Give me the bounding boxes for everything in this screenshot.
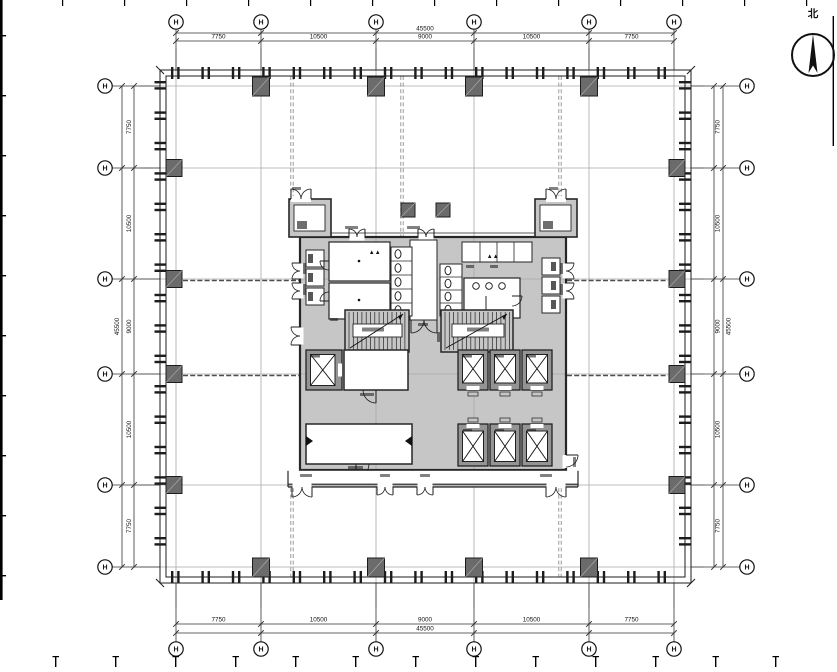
micro-label: [463, 355, 472, 358]
dimension-label: 10500: [523, 617, 541, 624]
dimension-label: 7750: [126, 120, 133, 135]
grid-bubble: H: [98, 478, 112, 492]
micro-label: [303, 284, 306, 295]
floor-plan-sheet: HHHHHH455007750105009000105007750HHHHHH4…: [0, 0, 837, 672]
dimension-label: 7750: [715, 519, 722, 534]
structural-column: [581, 558, 598, 577]
micro-label: [292, 187, 301, 190]
elevator-car: [306, 350, 342, 390]
micro-label: [418, 323, 428, 326]
elevator-car: [490, 350, 520, 396]
elevator-car: [522, 418, 552, 466]
micro-label: [560, 263, 563, 274]
micro-label: [348, 466, 363, 469]
dimension-label: 7750: [715, 120, 722, 135]
dimension-label: 10500: [310, 617, 328, 624]
micro-label: [380, 474, 390, 477]
grid-bubble: H: [667, 642, 681, 656]
dimension-label: 10500: [715, 214, 722, 232]
dimension-label: 10500: [523, 34, 541, 41]
dimension-label: 7750: [211, 617, 226, 624]
dimension-label: 45500: [416, 25, 434, 32]
svg-text:H: H: [744, 276, 749, 283]
dimension-label: 45500: [114, 317, 121, 335]
structural-column: [368, 558, 385, 577]
micro-label: [573, 457, 576, 467]
micro-label: [437, 332, 440, 342]
grid-bubble: H: [467, 642, 481, 656]
structural-column: [401, 203, 415, 217]
micro-label: [466, 265, 474, 268]
grid-bubble: H: [98, 161, 112, 175]
micro-label: [527, 429, 536, 432]
structural-column: [166, 477, 182, 494]
svg-text:H: H: [373, 646, 378, 653]
grid-bubble: H: [369, 15, 383, 29]
grid-bubble: H: [98, 367, 112, 381]
elevator-car: [522, 350, 552, 396]
micro-label: [311, 355, 320, 358]
svg-text:H: H: [671, 646, 676, 653]
micro-label: [360, 393, 374, 396]
structural-column: [368, 77, 385, 96]
micro-label: [495, 429, 504, 432]
dimension-label: 7750: [624, 617, 639, 624]
svg-text:H: H: [744, 83, 749, 90]
svg-text:H: H: [173, 646, 178, 653]
elevator-car: [458, 418, 488, 466]
svg-text:H: H: [586, 19, 591, 26]
svg-text:H: H: [744, 564, 749, 571]
dimension-label: 45500: [726, 317, 733, 335]
svg-text:H: H: [102, 165, 107, 172]
structural-column: [166, 366, 182, 383]
micro-label: [467, 328, 489, 332]
grid-bubble: H: [740, 478, 754, 492]
dimension-label: 7750: [126, 519, 133, 534]
dimension-label: 10500: [126, 420, 133, 438]
dimension-label: 9000: [418, 34, 433, 41]
floor-plan-canvas: HHHHHH455007750105009000105007750HHHHHH4…: [0, 0, 837, 672]
svg-text:H: H: [258, 646, 263, 653]
svg-text:H: H: [102, 276, 107, 283]
micro-label: [490, 265, 498, 268]
svg-text:H: H: [471, 646, 476, 653]
micro-label: [420, 474, 430, 477]
dimension-label: 45500: [416, 625, 434, 632]
svg-text:H: H: [102, 371, 107, 378]
svg-text:H: H: [102, 482, 107, 489]
micro-label: [300, 474, 312, 477]
grid-bubble: H: [740, 161, 754, 175]
grid-bubble: H: [98, 272, 112, 286]
svg-text:H: H: [671, 19, 676, 26]
micro-label: [330, 318, 338, 321]
svg-text:H: H: [173, 19, 178, 26]
elevator-car: [458, 350, 488, 396]
grid-bubble: H: [98, 79, 112, 93]
svg-text:H: H: [258, 19, 263, 26]
grid-bubble: H: [667, 15, 681, 29]
micro-label: [527, 355, 536, 358]
grid-bubble: H: [467, 15, 481, 29]
north-compass: 北: [792, 7, 834, 76]
dimension-label: 7750: [624, 34, 639, 41]
dimension-label: 10500: [126, 214, 133, 232]
grid-bubble: H: [740, 272, 754, 286]
grid-bubble: H: [254, 15, 268, 29]
structural-column: [166, 271, 182, 288]
dimension-label: 9000: [715, 319, 722, 334]
micro-label: [362, 328, 384, 332]
micro-label: [463, 429, 472, 432]
structural-column: [669, 271, 685, 288]
structural-column: [581, 77, 598, 96]
svg-text:H: H: [744, 165, 749, 172]
micro-label: [540, 474, 552, 477]
grid-bubble: H: [740, 367, 754, 381]
structural-column: [436, 203, 450, 217]
grid-bubble: H: [169, 642, 183, 656]
micro-label: [345, 226, 358, 229]
svg-text:H: H: [102, 83, 107, 90]
structural-column: [253, 558, 270, 577]
elevator-car: [490, 418, 520, 466]
grid-bubble: H: [740, 560, 754, 574]
structural-column: [466, 558, 483, 577]
micro-label: [495, 355, 504, 358]
structural-column: [466, 77, 483, 96]
grid-bubble: H: [169, 15, 183, 29]
dimension-label: 10500: [310, 34, 328, 41]
dimension-label: 10500: [715, 420, 722, 438]
north-needle-icon: [809, 34, 818, 73]
svg-text:H: H: [102, 564, 107, 571]
north-label: 北: [808, 7, 819, 20]
dimension-label: 7750: [211, 34, 226, 41]
structural-column: [669, 477, 685, 494]
grid-bubble: H: [582, 15, 596, 29]
micro-label: [303, 263, 306, 274]
dimension-label: 9000: [126, 319, 133, 334]
grid-bubble: H: [254, 642, 268, 656]
structural-column: [669, 160, 685, 177]
svg-text:H: H: [744, 371, 749, 378]
svg-text:H: H: [586, 646, 591, 653]
svg-text:H: H: [373, 19, 378, 26]
grid-bubble: H: [582, 642, 596, 656]
grid-bubble: H: [740, 79, 754, 93]
svg-text:H: H: [471, 19, 476, 26]
svg-text:H: H: [744, 482, 749, 489]
grid-bubble: H: [369, 642, 383, 656]
micro-label: [560, 284, 563, 295]
grid-bubble: H: [98, 560, 112, 574]
micro-label: [407, 226, 420, 229]
structural-column: [669, 366, 685, 383]
micro-label: [549, 187, 558, 190]
structural-column: [253, 77, 270, 96]
dimension-label: 9000: [418, 617, 433, 624]
structural-column: [166, 160, 182, 177]
